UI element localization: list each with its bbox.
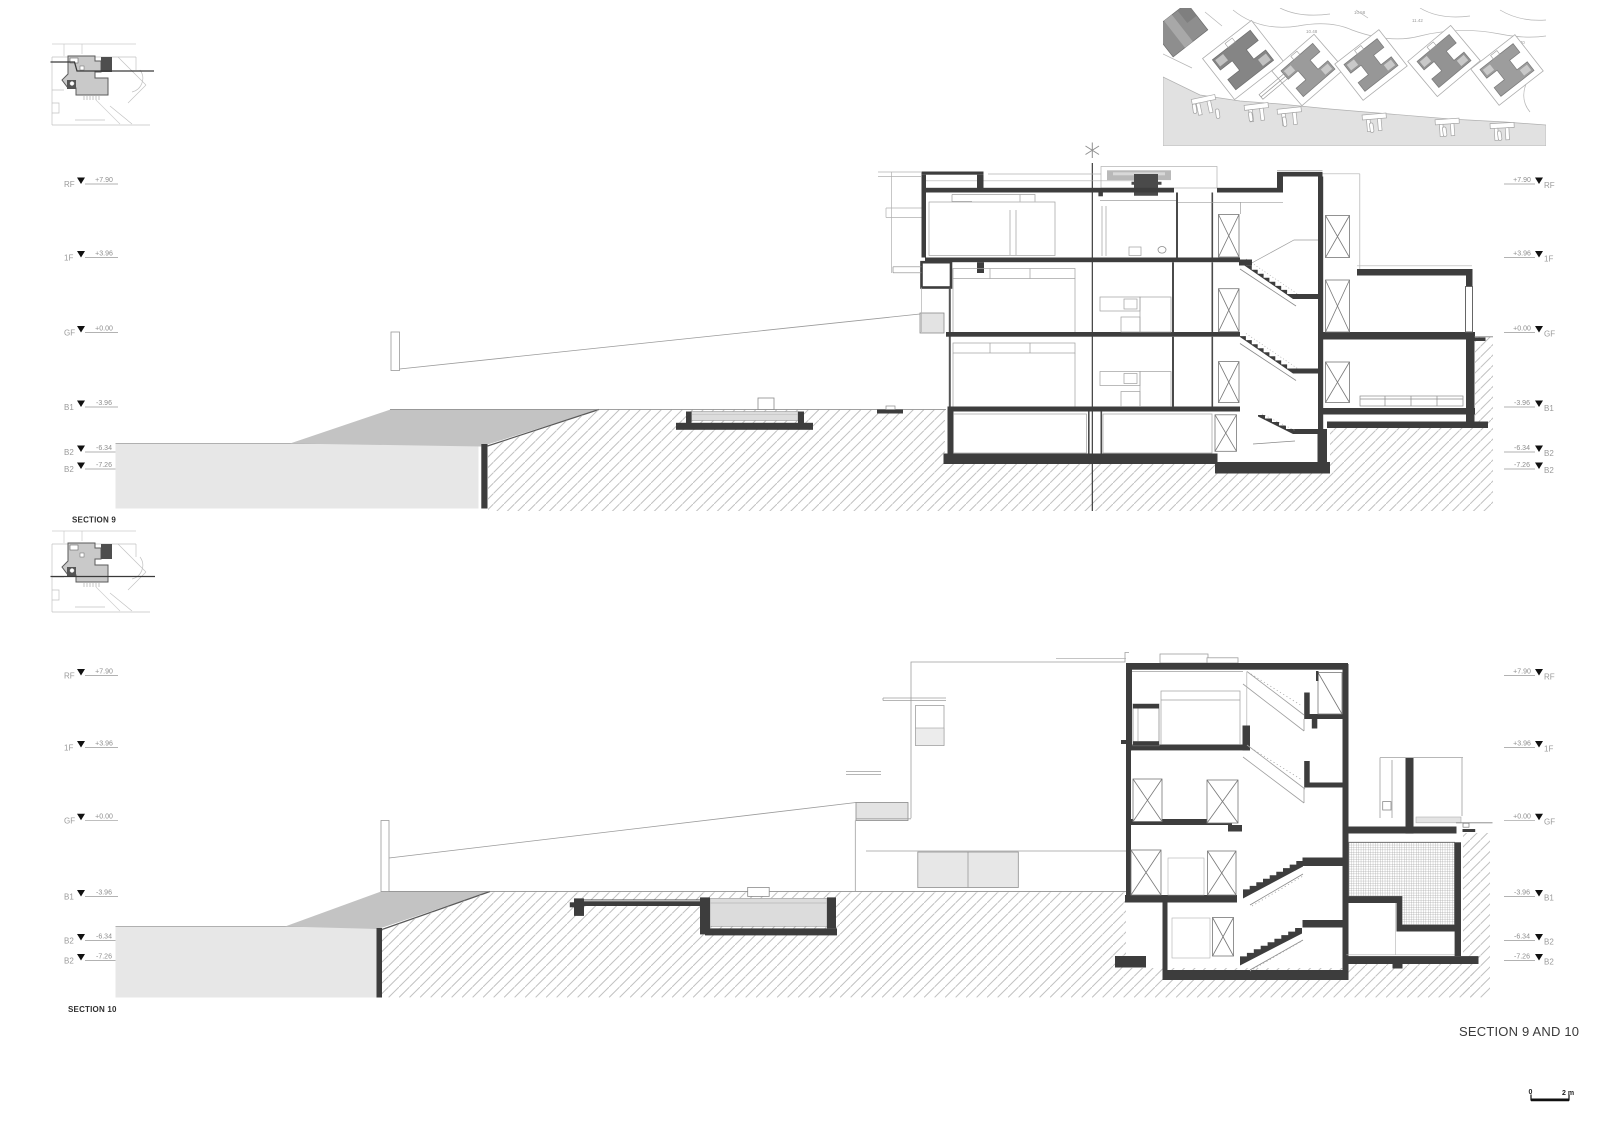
svg-text:+7.90: +7.90	[95, 669, 113, 676]
svg-text:SECTION 9 AND 10: SECTION 9 AND 10	[1459, 1024, 1579, 1039]
svg-text:10.48: 10.48	[1306, 29, 1318, 34]
svg-text:-3.96: -3.96	[96, 400, 112, 407]
svg-text:2 m: 2 m	[1562, 1090, 1574, 1097]
svg-text:-3.96: -3.96	[96, 890, 112, 897]
svg-text:0: 0	[1529, 1089, 1533, 1096]
svg-text:GF: GF	[64, 329, 75, 338]
svg-text:-7.26: -7.26	[1514, 462, 1530, 469]
svg-text:RF: RF	[64, 180, 75, 189]
svg-text:-7.26: -7.26	[96, 954, 112, 961]
svg-text:-3.96: -3.96	[1514, 400, 1530, 407]
svg-text:GF: GF	[1544, 817, 1555, 826]
svg-text:SECTION 10: SECTION 10	[68, 1005, 117, 1014]
svg-text:+7.90: +7.90	[1513, 177, 1531, 184]
svg-text:B2: B2	[1544, 958, 1554, 967]
svg-text:-7.26: -7.26	[1514, 954, 1530, 961]
svg-text:10.58: 10.58	[1354, 10, 1366, 15]
svg-text:RF: RF	[1544, 181, 1555, 190]
svg-text:+7.90: +7.90	[1513, 669, 1531, 676]
svg-text:-6.34: -6.34	[96, 934, 112, 941]
svg-text:B1: B1	[1544, 894, 1554, 903]
svg-text:GF: GF	[64, 816, 75, 825]
svg-text:+0.00: +0.00	[1513, 326, 1531, 333]
svg-text:B1: B1	[64, 893, 74, 902]
svg-text:B2: B2	[1544, 449, 1554, 458]
svg-text:+3.96: +3.96	[1513, 741, 1531, 748]
svg-text:-3.96: -3.96	[1514, 890, 1530, 897]
svg-text:SECTION 9: SECTION 9	[72, 516, 116, 525]
svg-text:1F: 1F	[64, 254, 73, 263]
svg-text:RF: RF	[64, 672, 75, 681]
svg-text:1F: 1F	[1544, 745, 1553, 754]
svg-text:+0.00: +0.00	[1513, 813, 1531, 820]
svg-text:B2: B2	[64, 448, 74, 457]
svg-text:+7.90: +7.90	[95, 177, 113, 184]
svg-text:B2: B2	[64, 937, 74, 946]
svg-text:+0.00: +0.00	[95, 813, 113, 820]
svg-text:GF: GF	[1544, 330, 1555, 339]
svg-text:-6.34: -6.34	[1514, 934, 1530, 941]
svg-text:B2: B2	[64, 957, 74, 966]
svg-text:-6.34: -6.34	[1514, 445, 1530, 452]
svg-text:+3.96: +3.96	[95, 741, 113, 748]
svg-text:11.42: 11.42	[1412, 18, 1423, 23]
svg-text:B2: B2	[1544, 938, 1554, 947]
svg-text:B1: B1	[64, 403, 74, 412]
svg-text:-7.26: -7.26	[96, 462, 112, 469]
svg-text:1F: 1F	[64, 744, 73, 753]
svg-text:1F: 1F	[1544, 255, 1553, 264]
svg-text:RF: RF	[1544, 673, 1555, 682]
svg-text:B1: B1	[1544, 404, 1554, 413]
svg-text:B2: B2	[64, 465, 74, 474]
svg-text:+3.96: +3.96	[95, 251, 113, 258]
svg-text:+3.96: +3.96	[1513, 251, 1531, 258]
svg-text:-6.34: -6.34	[96, 445, 112, 452]
svg-text:+0.00: +0.00	[95, 326, 113, 333]
svg-text:B2: B2	[1544, 466, 1554, 475]
